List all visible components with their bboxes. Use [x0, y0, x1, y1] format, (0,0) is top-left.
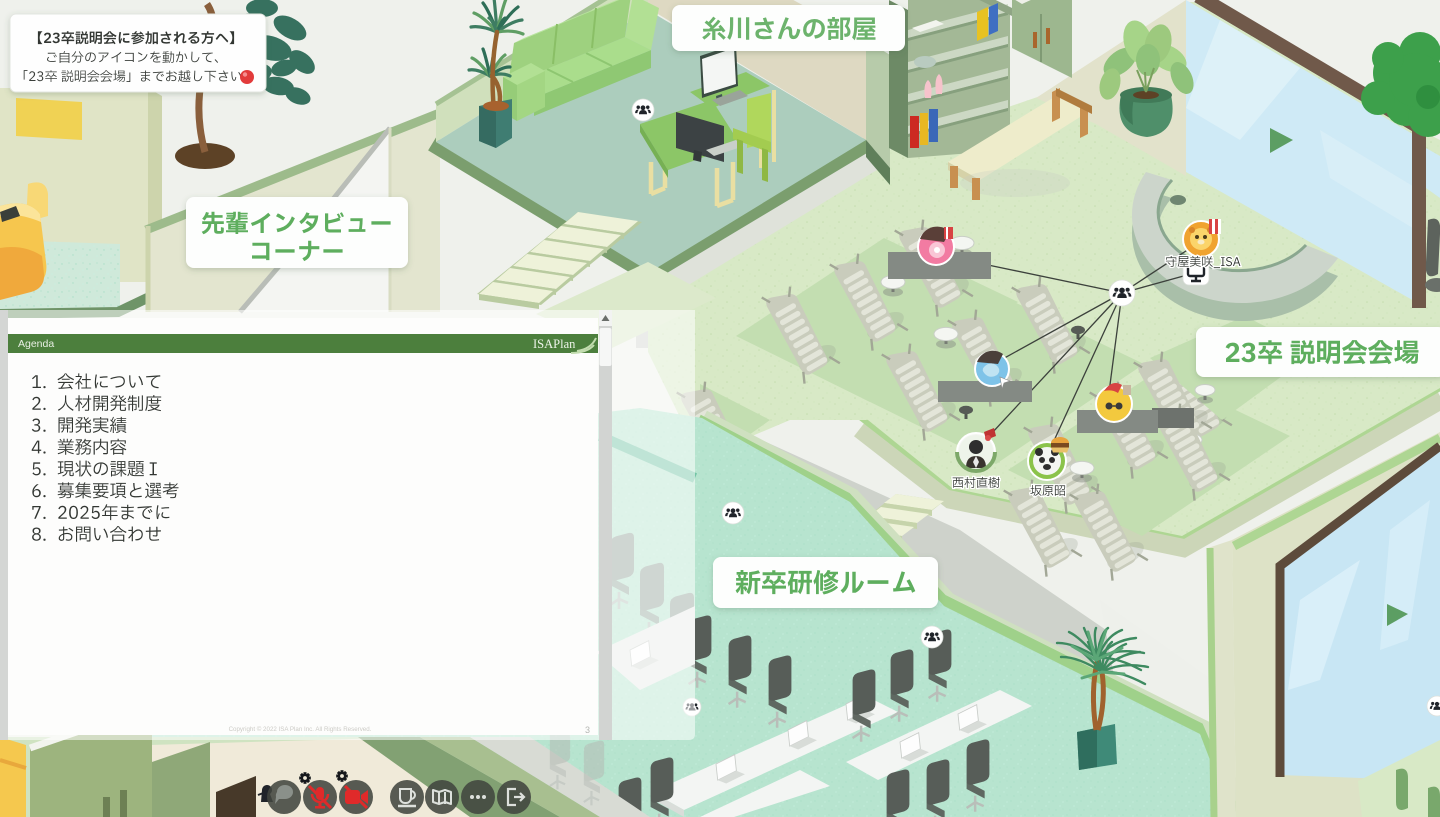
svg-text:Copyright © 2022 ISA Plan Inc.: Copyright © 2022 ISA Plan Inc. All Right…	[229, 726, 372, 733]
svg-text:ISAPlan: ISAPlan	[533, 337, 576, 351]
svg-text:3: 3	[585, 725, 590, 735]
svg-text:Agenda: Agenda	[18, 338, 54, 350]
